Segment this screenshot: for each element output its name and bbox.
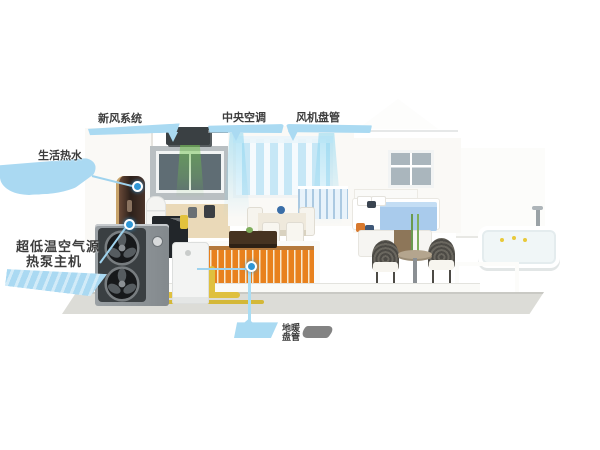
callout-fan-coil-pointer [288,131,298,141]
flower-stems [409,214,423,252]
fresh-airflow [176,145,204,198]
rubber-duck [500,238,504,242]
kitchen-appliance [188,207,197,218]
heat-pump-system-illustration: 新风系统 中央空调 风机盘管 生活热水 超低温空气源 热泵主机 地暖 盘管 [0,0,600,450]
callout-fan-coil-label: 风机盘管 [296,112,340,125]
tub-faucet-head [532,206,543,210]
callout-fan-coil-ribbon [286,124,372,133]
coffee-machine [204,205,215,218]
module-badge [185,250,191,256]
accent-pillow [367,201,376,208]
bedroom-window [388,150,434,188]
chair-cushion [429,260,454,270]
right-upper-wall [456,148,545,238]
callout-central-ac-label: 中央空调 [222,112,266,125]
callout-central-ac-pointer [231,131,241,141]
tank-display [127,200,132,212]
coffee-table [229,231,277,248]
callout-floor-heating-leader [197,268,251,270]
callout-fresh-air-label: 新风系统 [98,113,142,126]
yellow-valve [180,215,188,229]
rubber-duck [512,236,516,240]
callout-heat-pump-line1: 超低温空气源 [16,240,100,255]
shadow-swoosh [298,326,336,338]
callout-fresh-air-pointer [168,132,178,142]
fan-icon [104,266,140,302]
callout-heat-pump-dot [124,219,135,230]
callout-hot-water-label: 生活热水 [38,150,82,163]
coffee-table-decor [246,227,253,233]
tub-faucet [536,208,540,228]
callout-floor-heating-line [248,268,251,322]
rubber-duck [523,238,527,242]
callout-heat-pump-line2: 热泵主机 [26,255,82,270]
callout-hot-water-swoosh [0,158,97,197]
table-centerpiece [277,206,285,214]
callout-floor-heating-line2: 盘管 [282,332,300,342]
callout-floor-heating-ribbon [234,319,278,338]
callout-hot-water-dot [132,181,143,192]
callout-floor-heating-dot [246,261,257,272]
chair-cushion [373,262,398,272]
brand-badge [152,236,163,247]
